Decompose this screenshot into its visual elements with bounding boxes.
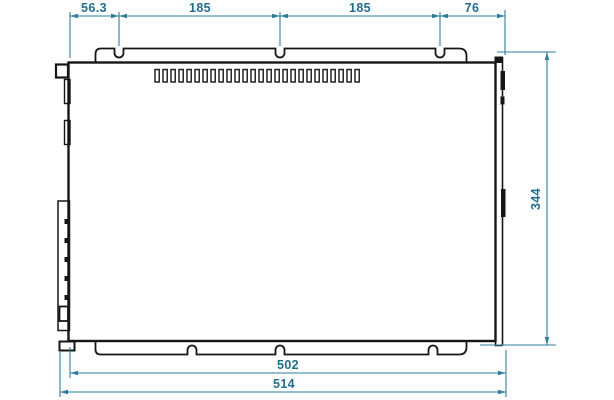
terminal-pin [65, 276, 70, 281]
right-cover-top-cap [495, 57, 504, 64]
dim-label-top-2: 185 [189, 1, 211, 15]
dim-label-bottom-inner: 502 [277, 358, 299, 372]
terminal-pin [65, 219, 70, 224]
right-cover-tab-3 [501, 189, 506, 217]
dim-label-top-1: 56.3 [81, 1, 107, 15]
dim-label-right-height: 344 [529, 188, 543, 210]
dim-label-bottom-overall: 514 [273, 377, 295, 391]
right-cover-tab-2 [501, 97, 505, 105]
technical-drawing-canvas: 56.3 185 185 76 344 502 514 [0, 0, 614, 400]
terminal-pin [65, 257, 70, 262]
device-top-view-drawing: 56.3 185 185 76 344 502 514 [0, 0, 614, 400]
terminal-pin [65, 295, 70, 300]
dim-label-top-4: 76 [465, 1, 480, 15]
dim-label-top-3: 185 [349, 1, 371, 15]
right-cover-tab-1 [501, 71, 506, 90]
terminal-pin [65, 238, 70, 243]
